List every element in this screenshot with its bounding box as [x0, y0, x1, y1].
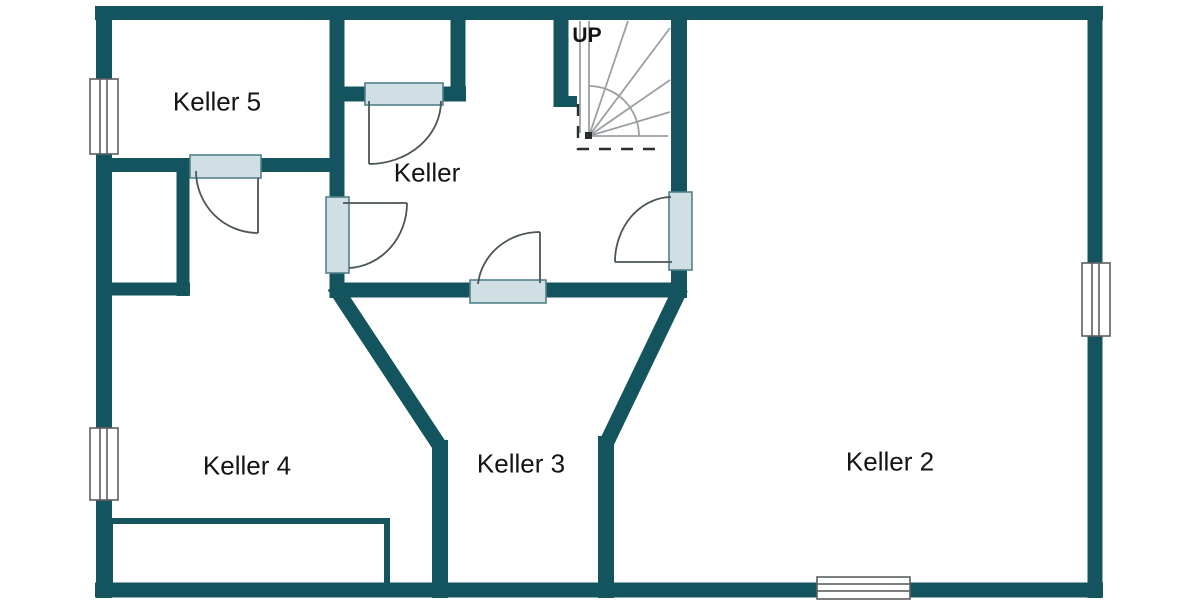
door-leaf — [470, 280, 546, 303]
room-label-keller2: Keller 2 — [846, 447, 934, 478]
wall-keller3-diagonal-left — [334, 286, 441, 448]
room-label-keller5: Keller 5 — [173, 87, 261, 118]
window-left-upper — [90, 79, 118, 154]
door-swing — [196, 171, 258, 233]
stairs-up-label: UP — [572, 24, 601, 48]
floor-plan: Keller 5 Keller Keller 4 Keller 3 Keller… — [0, 0, 1200, 600]
door-swing — [615, 197, 672, 262]
door-leaf — [669, 192, 692, 270]
room-label-keller4: Keller 4 — [203, 451, 291, 482]
window-left-lower — [90, 428, 118, 500]
keller4-partition-box — [110, 521, 387, 586]
door-leaf — [326, 197, 349, 273]
door-leaf — [365, 83, 443, 105]
door-leaf — [190, 155, 261, 178]
door-swing — [478, 232, 540, 284]
door-niche — [365, 83, 443, 164]
door-keller5 — [190, 155, 261, 233]
door-keller3 — [470, 232, 546, 303]
door-swing — [369, 101, 441, 164]
door-hall-left — [326, 197, 407, 273]
door-swing — [343, 203, 407, 268]
door-keller2 — [615, 192, 692, 270]
window-right — [1082, 263, 1110, 336]
room-label-keller3: Keller 3 — [477, 449, 565, 480]
wall-stair-left-stub — [560, 96, 577, 107]
window-bottom — [817, 577, 910, 599]
wall-keller3-diagonal-right — [606, 288, 681, 444]
stair-newel-pole — [585, 132, 592, 139]
room-label-keller: Keller — [394, 158, 460, 189]
